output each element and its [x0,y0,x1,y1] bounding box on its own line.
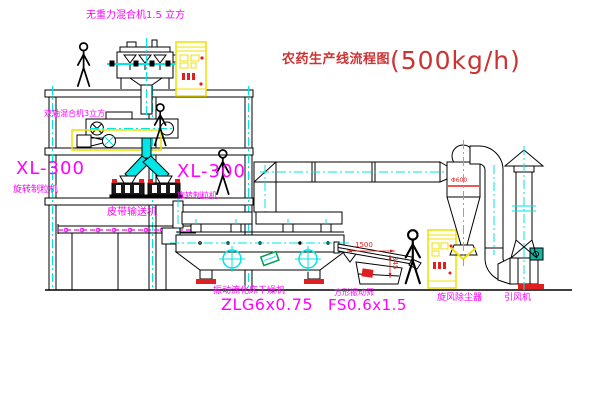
label-granulator-left-name: 旋转制粒机 [13,186,58,195]
dimension-cyclone-diameter: Φ600 [451,178,467,184]
control-cabinet-top [176,42,206,96]
process-flow-diagram: 农药生产线流程图(500kg/h) 无重力混合机1.5 立方 双轴混合机3立方 … [0,0,600,403]
label-screen-model: FS0.6x1.5 [328,298,407,313]
label-granulator-left-model: XL-300 [16,160,85,178]
diagram-title: 农药生产线流程图(500kg/h) [282,46,521,75]
label-granulator-mid-name: 旋转制粒机 [177,192,217,200]
dryer-exhaust-duct [254,162,463,212]
title-capacity: (500kg/h) [390,46,521,75]
title-text: 农药生产线流程图 [282,52,390,67]
control-cabinet-bottom [428,230,456,288]
label-cyclone: 旋风除尘器 [437,294,482,303]
label-twin-shaft-mixer: 双轴混合机3立方 [44,110,105,118]
rotary-granulators [110,176,182,198]
label-dryer-model: ZLG6x0.75 [221,297,313,313]
fluid-bed-dryer [170,212,356,284]
label-granulator-mid-model: XL-300 [177,163,246,181]
granulator-feed-pipe [125,138,169,180]
label-gravity-free-mixer: 无重力混合机1.5 立方 [86,11,185,21]
label-belt-conveyor: 皮带输送机 [107,208,157,218]
induced-draft-fan [498,248,544,289]
label-fan: 引风机 [504,294,531,303]
dimension-screen-length: 1500 [355,242,373,249]
dimension-screen-height: 345 [391,256,398,269]
person-figure [78,43,90,86]
